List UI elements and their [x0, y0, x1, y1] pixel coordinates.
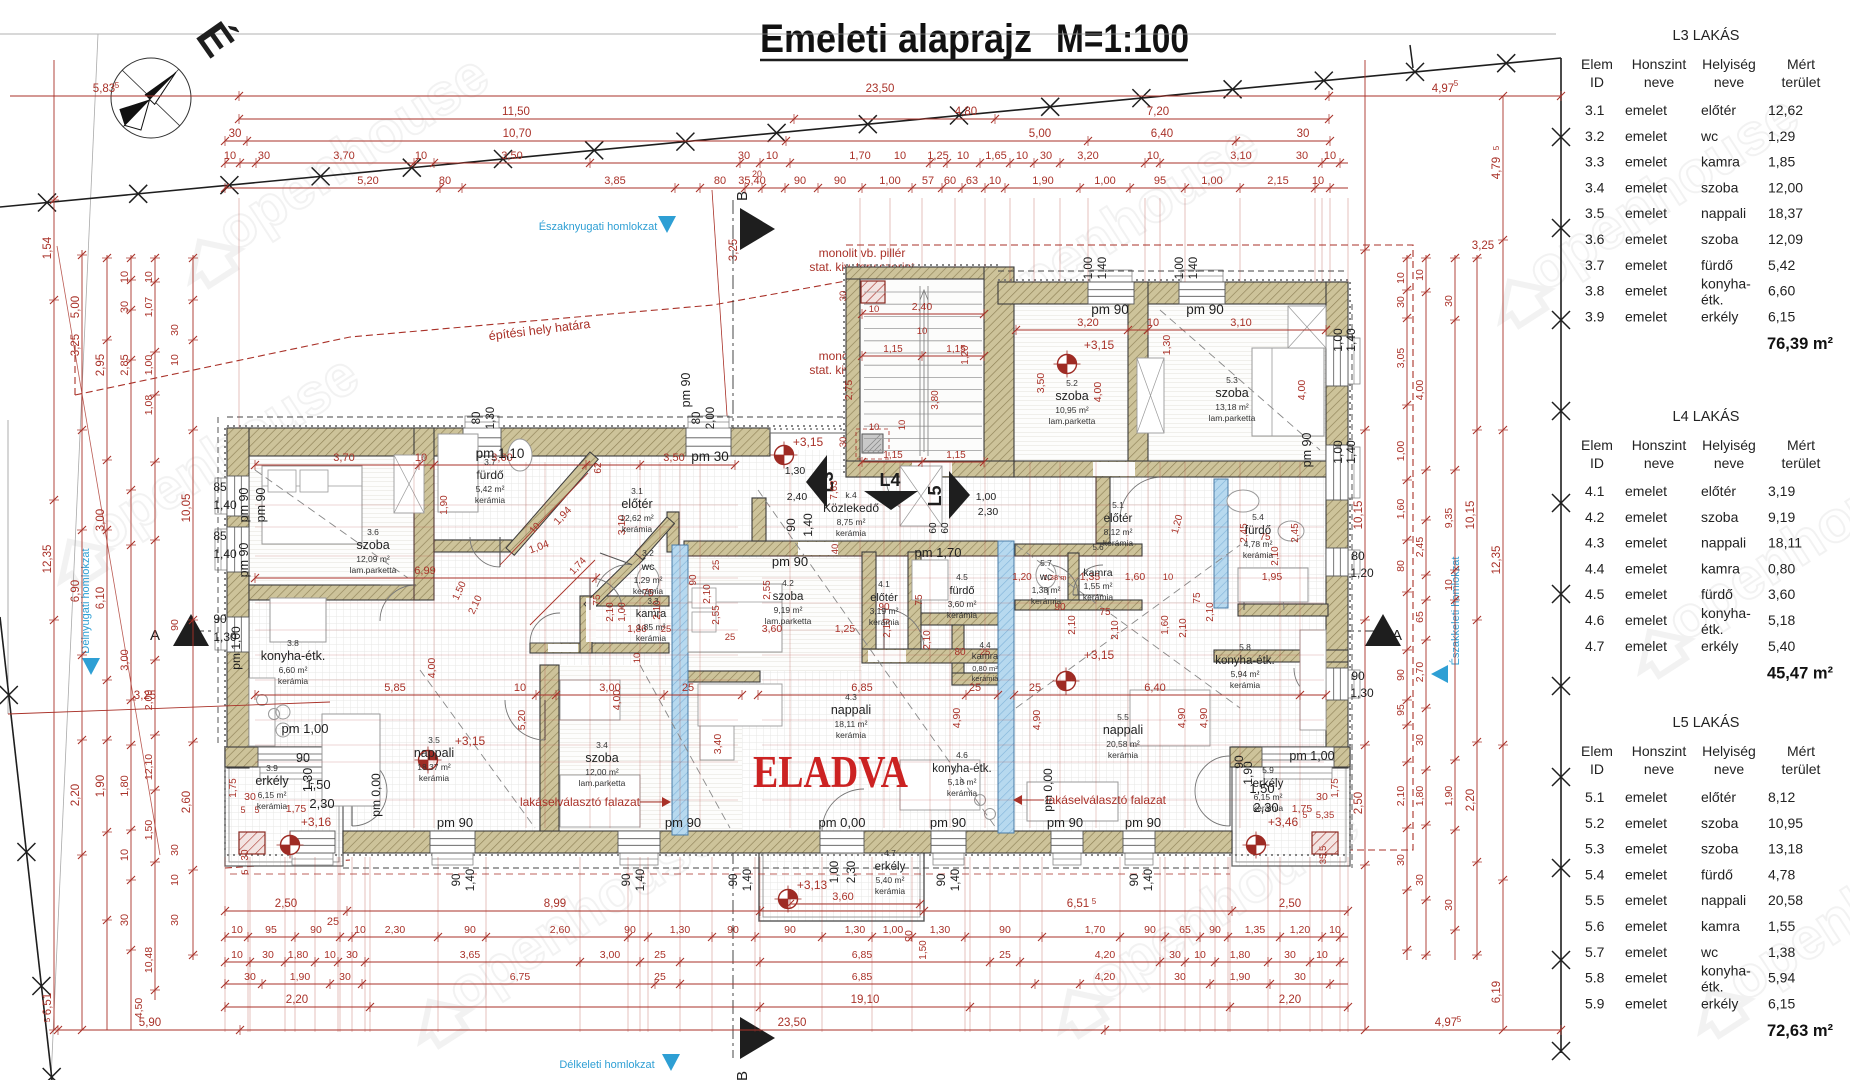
- svg-text:12,35: 12,35: [1491, 546, 1503, 575]
- svg-text:1,75: 1,75: [286, 803, 307, 815]
- svg-text:1,90: 1,90: [1443, 786, 1455, 807]
- svg-text:2,50: 2,50: [1279, 898, 1301, 910]
- svg-text:2,20: 2,20: [1279, 994, 1301, 1006]
- svg-text:3.9: 3.9: [266, 763, 278, 773]
- svg-text:kerámia: kerámia: [869, 617, 900, 627]
- svg-text:1,80: 1,80: [288, 949, 309, 961]
- svg-text:30: 30: [229, 128, 242, 140]
- svg-text:10: 10: [231, 949, 243, 961]
- svg-text:kerámia: kerámia: [475, 495, 506, 505]
- svg-text:kerámia: kerámia: [836, 730, 867, 740]
- svg-text:90: 90: [464, 924, 476, 936]
- svg-text:emelet: emelet: [1625, 789, 1667, 805]
- svg-text:25: 25: [1029, 682, 1041, 694]
- svg-text:lam.parketta: lam.parketta: [350, 565, 397, 575]
- svg-text:1,25: 1,25: [927, 150, 948, 162]
- svg-text:5.1: 5.1: [1585, 789, 1605, 805]
- svg-text:30: 30: [169, 844, 181, 856]
- svg-text:5,40 m²: 5,40 m²: [876, 875, 905, 885]
- svg-text:10,95 m²: 10,95 m²: [1055, 405, 1089, 415]
- svg-text:4,00: 4,00: [1092, 382, 1104, 403]
- svg-text:kamra: kamra: [972, 651, 999, 662]
- svg-text:0,80: 0,80: [1768, 560, 1795, 576]
- svg-text:30: 30: [1414, 874, 1426, 886]
- svg-text:4.4: 4.4: [979, 641, 991, 650]
- svg-text:nappali: nappali: [414, 746, 454, 760]
- svg-text:neve: neve: [1714, 761, 1745, 777]
- svg-text:5.2: 5.2: [1066, 378, 1078, 388]
- svg-text:1,75: 1,75: [1330, 778, 1341, 798]
- svg-text:+3,15: +3,15: [455, 734, 486, 748]
- svg-text:4,97: 4,97: [1432, 83, 1454, 95]
- svg-text:3.6: 3.6: [1585, 231, 1605, 247]
- svg-text:3,25: 3,25: [728, 239, 740, 261]
- svg-text:6,85: 6,85: [852, 971, 873, 983]
- svg-text:80: 80: [954, 647, 966, 658]
- svg-text:2,20: 2,20: [70, 784, 82, 806]
- svg-text:szoba: szoba: [1701, 815, 1739, 831]
- svg-text:90: 90: [794, 175, 806, 187]
- svg-text:4.5: 4.5: [1585, 586, 1605, 602]
- svg-text:10: 10: [1443, 579, 1455, 591]
- svg-text:6,15: 6,15: [1768, 308, 1795, 324]
- svg-text:3.1: 3.1: [631, 486, 643, 496]
- svg-text:konyha-étk.: konyha-étk.: [1215, 655, 1274, 667]
- svg-text:10: 10: [1163, 572, 1174, 583]
- svg-text:konyha-: konyha-: [1701, 963, 1751, 979]
- svg-text:10,05: 10,05: [181, 494, 193, 523]
- svg-text:1,50: 1,50: [143, 820, 155, 841]
- svg-text:szoba: szoba: [1701, 509, 1739, 525]
- svg-text:10: 10: [894, 150, 906, 162]
- svg-text:kerámia: kerámia: [419, 773, 450, 783]
- svg-text:1,65: 1,65: [985, 150, 1006, 162]
- svg-text:5: 5: [240, 869, 250, 874]
- svg-text:3.4: 3.4: [596, 740, 608, 750]
- svg-text:1,40: 1,40: [1344, 440, 1358, 464]
- svg-text:80: 80: [1351, 549, 1365, 563]
- svg-text:emelet: emelet: [1625, 586, 1667, 602]
- svg-text:2,60: 2,60: [181, 791, 193, 813]
- svg-text:1,30: 1,30: [785, 465, 806, 477]
- svg-text:35,5: 35,5: [1318, 846, 1329, 865]
- svg-text:1,30: 1,30: [845, 924, 866, 936]
- svg-text:1,30: 1,30: [485, 407, 497, 429]
- svg-text:3,50: 3,50: [663, 452, 684, 464]
- svg-text:90: 90: [903, 930, 915, 942]
- svg-text:3,25: 3,25: [134, 690, 156, 702]
- svg-text:1,00: 1,00: [143, 355, 155, 376]
- svg-text:kerámia: kerámia: [622, 524, 653, 534]
- svg-text:90: 90: [169, 619, 181, 631]
- svg-text:10: 10: [1312, 175, 1324, 187]
- svg-text:1,00: 1,00: [1331, 328, 1345, 352]
- svg-text:90: 90: [624, 924, 636, 936]
- svg-text:kamra: kamra: [1701, 154, 1740, 170]
- svg-text:pm 90: pm 90: [1091, 302, 1129, 317]
- svg-text:L5 LAKÁS: L5 LAKÁS: [1673, 714, 1740, 731]
- svg-text:3,85: 3,85: [604, 175, 625, 187]
- svg-text:pm 1,10: pm 1,10: [476, 446, 525, 461]
- svg-text:6,60: 6,60: [1768, 283, 1795, 299]
- svg-text:90: 90: [936, 874, 948, 887]
- svg-text:Elem: Elem: [1581, 743, 1613, 759]
- svg-text:5.6: 5.6: [1092, 543, 1104, 552]
- svg-text:emelet: emelet: [1625, 841, 1667, 857]
- svg-text:75: 75: [592, 594, 603, 606]
- svg-text:10: 10: [1329, 924, 1341, 936]
- svg-text:emelet: emelet: [1625, 205, 1667, 221]
- svg-text:20,58 m²: 20,58 m²: [1106, 739, 1140, 749]
- svg-text:5,83: 5,83: [93, 83, 115, 95]
- svg-text:emelet: emelet: [1625, 560, 1667, 576]
- svg-text:6,15: 6,15: [1768, 995, 1795, 1011]
- svg-text:szoba: szoba: [356, 538, 389, 552]
- svg-text:5: 5: [1454, 79, 1459, 88]
- svg-text:1,20: 1,20: [1012, 572, 1032, 583]
- svg-text:75: 75: [914, 594, 925, 606]
- svg-text:1,35: 1,35: [1245, 924, 1266, 936]
- svg-text:1,29 m²: 1,29 m²: [634, 575, 663, 585]
- svg-text:4.6: 4.6: [1585, 612, 1605, 628]
- svg-text:10: 10: [957, 150, 969, 162]
- svg-text:szoba: szoba: [1215, 386, 1248, 400]
- svg-text:étk.: étk.: [1701, 621, 1724, 637]
- svg-text:ELADVA: ELADVA: [753, 746, 908, 797]
- svg-text:3,20: 3,20: [1077, 150, 1098, 162]
- svg-text:6,51: 6,51: [42, 993, 54, 1015]
- svg-text:60: 60: [944, 175, 956, 187]
- svg-text:9,19 m²: 9,19 m²: [774, 605, 803, 615]
- svg-text:étk.: étk.: [1701, 979, 1724, 995]
- svg-text:72,63 m²: 72,63 m²: [1767, 1022, 1834, 1040]
- svg-text:90: 90: [784, 924, 796, 936]
- svg-text:4.1: 4.1: [878, 579, 890, 589]
- svg-text:5.8: 5.8: [1585, 970, 1605, 986]
- svg-text:lam.parketta: lam.parketta: [1209, 413, 1256, 423]
- svg-text:4.2: 4.2: [782, 578, 794, 588]
- svg-text:90: 90: [1351, 669, 1365, 683]
- svg-text:kamra: kamra: [1701, 560, 1740, 576]
- svg-text:Délkeleti homlokzat: Délkeleti homlokzat: [559, 1059, 654, 1071]
- svg-text:3,60: 3,60: [832, 891, 853, 903]
- svg-text:neve: neve: [1714, 74, 1745, 90]
- svg-text:3,65: 3,65: [460, 949, 481, 961]
- svg-text:2,30: 2,30: [309, 796, 334, 811]
- svg-text:emelet: emelet: [1625, 257, 1667, 273]
- svg-text:1,54: 1,54: [42, 236, 54, 259]
- svg-text:2,85: 2,85: [119, 354, 131, 375]
- svg-text:90: 90: [1395, 669, 1407, 681]
- svg-text:1,00: 1,00: [1395, 441, 1407, 462]
- svg-text:2,10: 2,10: [1067, 615, 1078, 635]
- svg-text:1,00: 1,00: [829, 861, 841, 883]
- svg-text:1,85 m²: 1,85 m²: [637, 622, 666, 632]
- svg-text:1,20: 1,20: [960, 345, 971, 365]
- svg-text:pm 90: pm 90: [665, 815, 701, 830]
- svg-text:3.8: 3.8: [1585, 283, 1605, 299]
- svg-text:10: 10: [1016, 150, 1028, 162]
- svg-text:90: 90: [451, 874, 463, 887]
- svg-text:4,00: 4,00: [1296, 380, 1308, 401]
- svg-text:90: 90: [784, 518, 798, 532]
- svg-text:emelet: emelet: [1625, 918, 1667, 934]
- svg-text:emelet: emelet: [1625, 154, 1667, 170]
- svg-text:10: 10: [1414, 269, 1426, 281]
- svg-text:pm 1,70: pm 1,70: [915, 545, 962, 560]
- svg-text:30: 30: [738, 150, 750, 162]
- svg-text:1,80: 1,80: [119, 775, 131, 796]
- svg-text:5,85: 5,85: [384, 682, 405, 694]
- svg-text:1,20: 1,20: [1350, 566, 1374, 580]
- svg-text:11,50: 11,50: [502, 106, 530, 118]
- svg-text:10: 10: [897, 420, 908, 431]
- svg-text:B: B: [734, 191, 751, 201]
- svg-text:L4 LAKÁS: L4 LAKÁS: [1673, 408, 1740, 425]
- svg-text:emelet: emelet: [1625, 638, 1667, 654]
- svg-text:10: 10: [143, 271, 155, 283]
- svg-text:3.8: 3.8: [287, 638, 299, 648]
- svg-text:3,60 m²: 3,60 m²: [948, 599, 977, 609]
- svg-text:erkély: erkély: [255, 774, 289, 788]
- svg-text:1,38: 1,38: [1768, 944, 1795, 960]
- svg-text:13,18: 13,18: [1768, 841, 1803, 857]
- svg-text:9,19: 9,19: [1768, 509, 1795, 525]
- svg-text:3.3: 3.3: [647, 597, 659, 606]
- svg-text:2,30: 2,30: [1253, 800, 1278, 815]
- svg-text:3,00: 3,00: [119, 649, 131, 670]
- svg-text:kamra: kamra: [1083, 567, 1112, 579]
- svg-text:1,60: 1,60: [1160, 615, 1171, 635]
- svg-text:terület: terület: [1782, 74, 1821, 90]
- svg-text:80: 80: [691, 412, 703, 425]
- svg-text:wc: wc: [1700, 128, 1718, 144]
- svg-text:2,10: 2,10: [1395, 786, 1407, 807]
- svg-text:75: 75: [1099, 607, 1111, 618]
- svg-text:4.3: 4.3: [845, 692, 857, 702]
- svg-text:30: 30: [838, 291, 849, 302]
- svg-text:80: 80: [1395, 560, 1407, 572]
- svg-text:2,30: 2,30: [846, 861, 858, 883]
- svg-text:30: 30: [1316, 791, 1328, 803]
- svg-text:1,90: 1,90: [95, 775, 107, 797]
- svg-text:5.4: 5.4: [1252, 512, 1264, 522]
- svg-text:5.3: 5.3: [1226, 375, 1238, 385]
- svg-text:1,00: 1,00: [1331, 440, 1345, 464]
- svg-text:10: 10: [514, 682, 526, 694]
- svg-text:5,00: 5,00: [70, 296, 82, 318]
- svg-text:fürdő: fürdő: [1245, 525, 1271, 537]
- svg-text:1,80: 1,80: [1414, 786, 1426, 807]
- svg-text:18,11: 18,11: [1768, 535, 1802, 551]
- svg-text:terület: terület: [1782, 761, 1821, 777]
- svg-text:előtér: előtér: [870, 592, 898, 604]
- svg-text:4.5: 4.5: [956, 572, 968, 582]
- svg-text:5,42 m²: 5,42 m²: [476, 484, 505, 494]
- svg-text:1,40: 1,40: [465, 869, 477, 891]
- svg-text:lam.parketta: lam.parketta: [579, 778, 626, 788]
- svg-text:5,94 m²: 5,94 m²: [1231, 669, 1260, 679]
- svg-text:4.4: 4.4: [1585, 560, 1605, 576]
- svg-text:6,10: 6,10: [95, 587, 107, 609]
- svg-text:Helyiség: Helyiség: [1702, 56, 1756, 72]
- svg-text:4,00: 4,00: [426, 658, 438, 679]
- svg-text:1,90: 1,90: [1032, 175, 1053, 187]
- svg-text:5.8: 5.8: [1239, 642, 1251, 652]
- svg-text:fürdő: fürdő: [1701, 257, 1733, 273]
- svg-text:szoba: szoba: [1701, 179, 1739, 195]
- svg-text:3.1: 3.1: [1585, 102, 1605, 118]
- svg-text:pm 1,00: pm 1,00: [1289, 749, 1334, 763]
- svg-text:1,75: 1,75: [228, 778, 239, 798]
- svg-text:A: A: [1392, 627, 1402, 644]
- svg-text:1,30: 1,30: [1161, 335, 1173, 356]
- svg-text:pm 0,00: pm 0,00: [369, 773, 383, 817]
- svg-text:57: 57: [922, 175, 934, 187]
- svg-text:85: 85: [213, 480, 227, 494]
- svg-text:konyha-: konyha-: [1701, 276, 1751, 292]
- svg-text:85: 85: [213, 529, 227, 543]
- svg-text:1,90: 1,90: [1230, 971, 1251, 983]
- svg-text:1,00: 1,00: [1083, 257, 1095, 279]
- svg-text:2,40: 2,40: [912, 301, 933, 313]
- svg-text:szoba: szoba: [1055, 389, 1088, 403]
- svg-text:7,20: 7,20: [1147, 106, 1169, 118]
- svg-text:1,70: 1,70: [849, 150, 870, 162]
- svg-text:2,10: 2,10: [702, 584, 713, 604]
- svg-text:konyha-étk.: konyha-étk.: [261, 649, 326, 663]
- svg-text:90: 90: [728, 874, 740, 887]
- svg-text:4,97: 4,97: [1435, 1017, 1457, 1029]
- svg-text:10: 10: [1147, 317, 1159, 329]
- svg-text:pm 90: pm 90: [237, 543, 251, 578]
- svg-text:pm 90: pm 90: [1186, 302, 1224, 317]
- svg-text:20: 20: [752, 169, 762, 179]
- svg-text:3.4: 3.4: [1585, 179, 1605, 195]
- svg-text:18,11 m²: 18,11 m²: [835, 719, 868, 729]
- svg-text:90: 90: [296, 751, 310, 765]
- svg-text:1,29: 1,29: [1768, 128, 1795, 144]
- svg-text:5,42: 5,42: [1768, 257, 1795, 273]
- svg-text:10: 10: [989, 175, 1001, 187]
- svg-text:pm 90: pm 90: [437, 815, 473, 830]
- svg-text:5,20: 5,20: [357, 175, 378, 187]
- svg-text:előtér: előtér: [621, 497, 652, 511]
- svg-text:7,63: 7,63: [829, 480, 840, 500]
- svg-text:10: 10: [869, 422, 880, 433]
- svg-text:10: 10: [119, 849, 131, 861]
- svg-text:12,09 m²: 12,09 m²: [356, 554, 390, 564]
- svg-text:6,15 m²: 6,15 m²: [258, 790, 287, 800]
- svg-text:30: 30: [258, 150, 270, 162]
- svg-text:emelet: emelet: [1625, 944, 1667, 960]
- svg-text:2,10: 2,10: [1178, 618, 1189, 638]
- svg-text:1,00: 1,00: [879, 175, 900, 187]
- svg-text:3,60: 3,60: [1768, 586, 1795, 602]
- svg-text:kerámia: kerámia: [1083, 592, 1114, 602]
- svg-text:10: 10: [917, 326, 928, 337]
- svg-text:6,75: 6,75: [510, 971, 531, 983]
- svg-text:szoba: szoba: [1701, 231, 1739, 247]
- svg-text:3.5: 3.5: [428, 735, 440, 745]
- svg-text:4.7: 4.7: [884, 848, 896, 858]
- svg-text:10: 10: [224, 150, 236, 162]
- svg-text:szoba: szoba: [585, 751, 618, 765]
- svg-text:40: 40: [830, 544, 841, 555]
- svg-text:neve: neve: [1714, 455, 1745, 471]
- svg-text:3,19 m²: 3,19 m²: [870, 606, 899, 616]
- svg-text:erkély: erkély: [1701, 638, 1738, 654]
- svg-text:ID: ID: [1590, 455, 1604, 471]
- svg-text:emelet: emelet: [1625, 815, 1667, 831]
- svg-text:kerámia: kerámia: [875, 886, 906, 896]
- svg-text:pm 90: pm 90: [237, 488, 251, 523]
- svg-text:12,62 m²: 12,62 m²: [620, 513, 654, 523]
- svg-text:90: 90: [834, 175, 846, 187]
- svg-text:5: 5: [43, 1017, 52, 1022]
- svg-text:90: 90: [1144, 924, 1156, 936]
- svg-text:3,50: 3,50: [501, 150, 522, 162]
- svg-text:2,10: 2,10: [922, 630, 933, 650]
- svg-text:4,90: 4,90: [1176, 708, 1188, 729]
- svg-text:10,48: 10,48: [143, 947, 155, 973]
- svg-text:1,00: 1,00: [1201, 175, 1222, 187]
- svg-text:3.9: 3.9: [1585, 308, 1605, 324]
- svg-text:1,40: 1,40: [213, 547, 237, 561]
- svg-text:pm 0,00: pm 0,00: [819, 815, 866, 830]
- svg-text:étk.: étk.: [1701, 292, 1724, 308]
- svg-text:5,35: 5,35: [1316, 810, 1335, 821]
- svg-text:63: 63: [966, 175, 978, 187]
- svg-text:lakáselválasztó falazat: lakáselválasztó falazat: [520, 795, 641, 809]
- svg-text:80: 80: [714, 175, 726, 187]
- svg-text:12,35: 12,35: [42, 545, 54, 574]
- svg-text:3,05: 3,05: [1395, 348, 1407, 369]
- svg-text:2,40: 2,40: [787, 491, 808, 503]
- svg-text:erkély: erkély: [1701, 995, 1738, 1011]
- svg-text:30: 30: [1395, 296, 1407, 308]
- svg-text:90: 90: [999, 924, 1011, 936]
- svg-text:1,50: 1,50: [305, 777, 330, 792]
- svg-text:5,18 m²: 5,18 m²: [948, 777, 977, 787]
- svg-text:6,51: 6,51: [1067, 898, 1089, 910]
- svg-text:1,30: 1,30: [213, 630, 237, 644]
- svg-text:90: 90: [1129, 874, 1141, 887]
- svg-text:1,55: 1,55: [1768, 918, 1795, 934]
- svg-text:emelet: emelet: [1625, 231, 1667, 247]
- svg-text:1,00: 1,00: [976, 491, 997, 503]
- svg-text:fürdő: fürdő: [1701, 586, 1733, 602]
- svg-text:10: 10: [415, 150, 427, 162]
- svg-text:+3,16: +3,16: [301, 815, 332, 829]
- svg-text:18,37: 18,37: [1768, 205, 1803, 221]
- svg-text:5: 5: [1302, 810, 1307, 820]
- svg-text:10,70: 10,70: [503, 128, 532, 140]
- svg-text:pm 90: pm 90: [1125, 815, 1161, 830]
- svg-text:monolit vb. pillér: monolit vb. pillér: [819, 246, 906, 260]
- svg-text:3,25: 3,25: [1472, 240, 1494, 252]
- svg-text:5: 5: [115, 81, 120, 90]
- svg-text:1,00: 1,00: [617, 602, 628, 622]
- svg-text:30: 30: [339, 971, 351, 983]
- svg-text:4,50: 4,50: [133, 998, 145, 1019]
- svg-text:3,40: 3,40: [712, 734, 724, 755]
- svg-text:nappali: nappali: [831, 703, 871, 717]
- svg-text:30: 30: [1443, 899, 1455, 911]
- svg-text:5: 5: [240, 805, 245, 815]
- svg-text:M=1:100: M=1:100: [1056, 17, 1189, 61]
- svg-text:nappali: nappali: [1701, 892, 1746, 908]
